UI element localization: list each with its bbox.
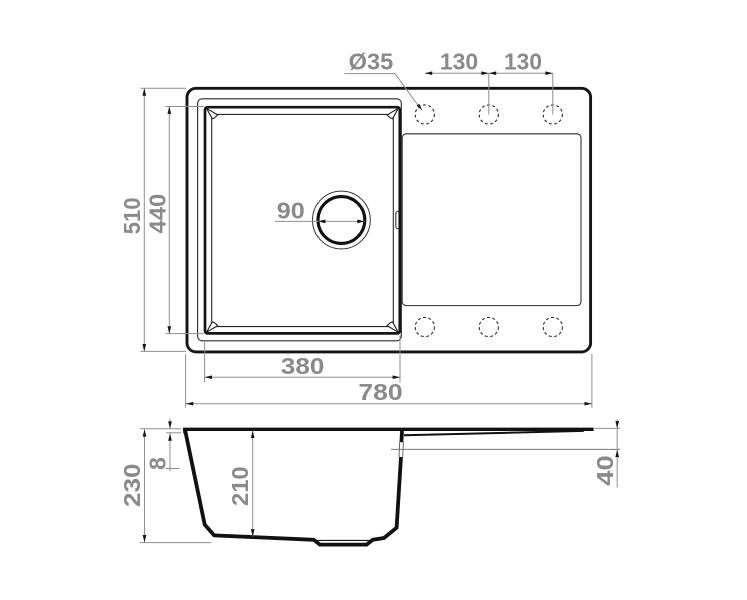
svg-text:230: 230 (119, 464, 145, 508)
svg-text:780: 780 (358, 379, 402, 405)
svg-text:210: 210 (227, 466, 253, 506)
svg-text:40: 40 (592, 455, 618, 486)
svg-text:130: 130 (504, 49, 542, 75)
svg-text:90: 90 (277, 197, 305, 223)
svg-text:440: 440 (144, 194, 170, 234)
svg-text:Ø35: Ø35 (349, 48, 394, 74)
svg-text:130: 130 (440, 48, 478, 74)
svg-text:510: 510 (119, 198, 145, 235)
svg-text:380: 380 (281, 353, 324, 379)
